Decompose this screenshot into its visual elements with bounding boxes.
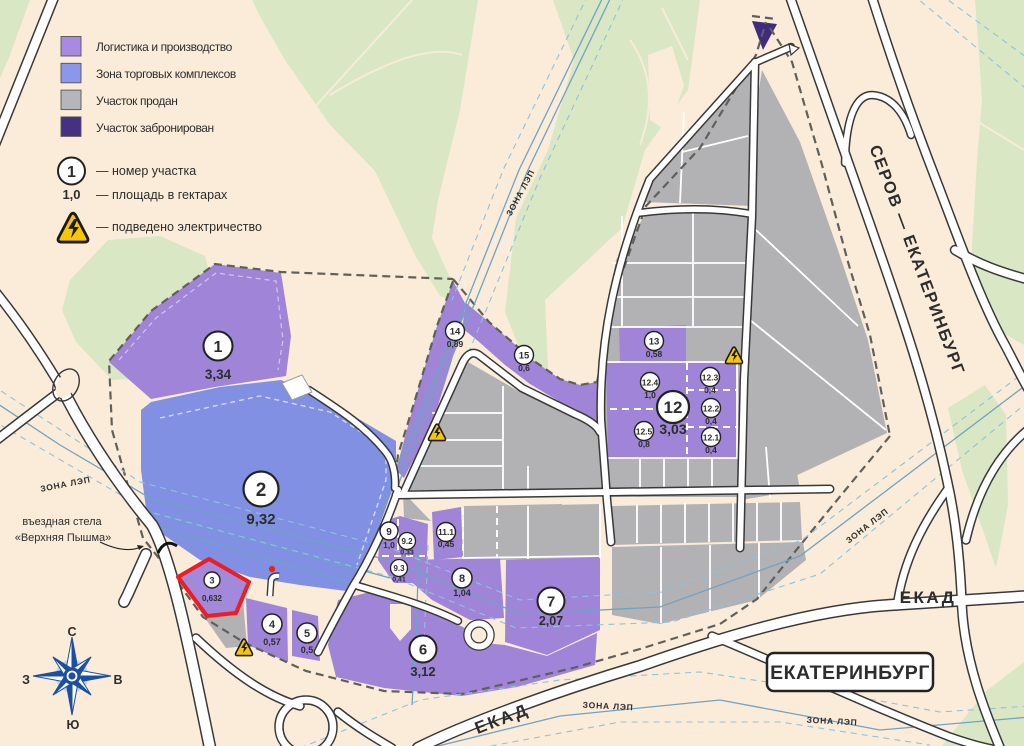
svg-text:Логистика и производство: Логистика и производство xyxy=(96,40,233,54)
svg-text:0,4: 0,4 xyxy=(704,385,716,395)
svg-text:Участок продан: Участок продан xyxy=(96,94,177,108)
svg-text:0,8: 0,8 xyxy=(638,439,650,449)
svg-text:3: 3 xyxy=(209,576,214,586)
svg-text:9.2: 9.2 xyxy=(401,537,413,546)
svg-text:3,03: 3,03 xyxy=(659,421,686,437)
svg-text:0,6: 0,6 xyxy=(518,363,530,373)
svg-text:2: 2 xyxy=(256,480,267,501)
svg-text:3,34: 3,34 xyxy=(205,367,232,382)
svg-text:0,4: 0,4 xyxy=(705,416,717,426)
svg-text:Ю: Ю xyxy=(67,718,80,732)
svg-text:въездная стела: въездная стела xyxy=(22,516,102,528)
svg-text:«Верхняя Пышма»: «Верхняя Пышма» xyxy=(15,532,112,544)
svg-text:12.3: 12.3 xyxy=(702,373,719,383)
svg-text:1,0: 1,0 xyxy=(383,540,395,550)
svg-text:0,89: 0,89 xyxy=(447,339,464,349)
svg-text:Зона торговых комплексов: Зона торговых комплексов xyxy=(96,67,236,81)
svg-text:— подведено электричество: — подведено электричество xyxy=(96,220,262,234)
svg-text:14: 14 xyxy=(450,327,461,338)
svg-text:5: 5 xyxy=(304,628,310,640)
svg-text:12.2: 12.2 xyxy=(703,404,720,414)
svg-text:12.5: 12.5 xyxy=(636,427,653,437)
svg-text:15: 15 xyxy=(519,351,530,362)
svg-text:Участок забронирован: Участок забронирован xyxy=(96,121,214,135)
svg-text:1,0: 1,0 xyxy=(62,187,80,202)
svg-text:1: 1 xyxy=(67,164,76,181)
svg-text:0,5: 0,5 xyxy=(301,645,314,655)
svg-text:2,07: 2,07 xyxy=(539,614,563,628)
svg-text:9.3: 9.3 xyxy=(393,564,405,573)
svg-text:1,04: 1,04 xyxy=(453,588,471,598)
svg-text:0,4: 0,4 xyxy=(705,445,717,455)
svg-text:4: 4 xyxy=(269,619,276,631)
svg-text:0,33: 0,33 xyxy=(400,550,414,557)
svg-text:1: 1 xyxy=(214,339,223,356)
svg-text:12.1: 12.1 xyxy=(703,433,720,443)
svg-text:0,41: 0,41 xyxy=(392,577,406,584)
svg-text:0,45: 0,45 xyxy=(438,539,455,549)
svg-text:В: В xyxy=(113,673,122,687)
svg-text:7: 7 xyxy=(547,594,555,611)
svg-text:0,57: 0,57 xyxy=(263,637,281,647)
svg-text:9: 9 xyxy=(386,527,392,538)
svg-text:— площадь в гектарах: — площадь в гектарах xyxy=(96,188,228,202)
svg-text:9,32: 9,32 xyxy=(246,511,275,528)
svg-text:0,58: 0,58 xyxy=(646,349,663,359)
svg-text:1,0: 1,0 xyxy=(644,390,656,400)
svg-text:3,12: 3,12 xyxy=(410,664,435,679)
svg-text:6: 6 xyxy=(419,642,427,659)
svg-text:С: С xyxy=(67,625,76,639)
svg-text:0,632: 0,632 xyxy=(202,594,223,603)
svg-text:ЕКАТЕРИНБУРГ: ЕКАТЕРИНБУРГ xyxy=(770,662,930,684)
svg-text:ЕКАД: ЕКАД xyxy=(900,588,957,607)
svg-text:11.1: 11.1 xyxy=(438,527,454,537)
svg-text:12.4: 12.4 xyxy=(642,378,659,388)
svg-text:— номер участка: — номер участка xyxy=(96,164,196,178)
svg-text:12: 12 xyxy=(664,398,683,417)
svg-text:8: 8 xyxy=(459,573,465,585)
svg-text:13: 13 xyxy=(649,337,660,348)
svg-text:З: З xyxy=(22,673,30,687)
